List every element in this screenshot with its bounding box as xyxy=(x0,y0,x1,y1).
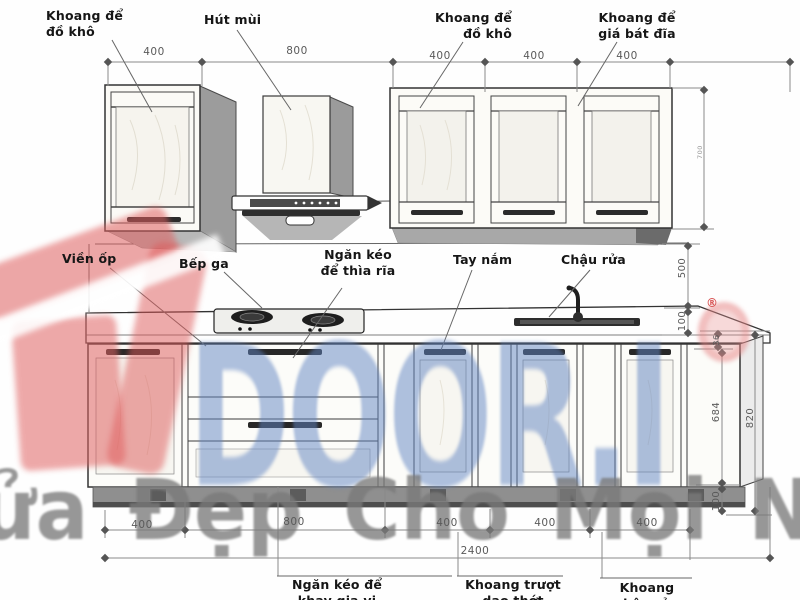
callout-range-hood: Hút mùi xyxy=(204,12,261,28)
kitchen-drawing-canvas: DOOR.I ửa Đẹp Cho Mọi Nh ® Khoang để đồ … xyxy=(0,0,800,600)
base-cabinets xyxy=(88,336,763,507)
callout-spice-drawer: Ngăn kéo để khay gia vị xyxy=(282,577,392,600)
gas-hob xyxy=(214,309,364,333)
callout-sink-compartment: Khoang chậu rửa xyxy=(607,580,687,600)
dim-total-2400: 2400 xyxy=(450,545,500,557)
dim-top-400-d: 400 xyxy=(607,50,647,62)
dim-bottom-400-d: 400 xyxy=(627,517,667,529)
dim-bottom-800: 800 xyxy=(274,516,314,528)
dim-gap-100: 100 xyxy=(677,304,689,338)
dim-backsplash-500: 500 xyxy=(677,251,689,285)
dim-bottom-400-c: 400 xyxy=(525,517,565,529)
dim-top-400-c: 400 xyxy=(514,50,554,62)
callout-gas-stove: Bếp ga xyxy=(179,256,229,272)
callout-dry-goods-left: Khoang để đồ khô xyxy=(46,8,132,40)
sink-faucet xyxy=(514,286,640,327)
dim-bottom-400-b: 400 xyxy=(427,517,467,529)
dim-plinth-100: 100 xyxy=(711,484,723,518)
dim-base-684: 684 xyxy=(711,395,723,429)
callout-handle: Tay nắm xyxy=(453,252,512,268)
callout-edge-trim: Viền ốp xyxy=(62,251,116,267)
dim-upper-height: 700 xyxy=(694,135,706,169)
range-hood xyxy=(232,96,382,240)
upper-cabinet-left xyxy=(105,85,236,252)
dim-bottom-400-a: 400 xyxy=(122,519,162,531)
callout-dry-goods-right: Khoang để đồ khô xyxy=(428,10,512,42)
callout-cutlery-drawer: Ngăn kéo để thìa rĩa xyxy=(302,247,414,279)
upper-cabinets-right xyxy=(390,88,672,245)
dim-base-820: 820 xyxy=(745,401,757,435)
dim-top-400-b: 400 xyxy=(420,50,460,62)
callout-sliding-compartment: Khoang trượt dao thớt xyxy=(458,577,568,600)
callout-dish-rack: Khoang để giá bát đĩa xyxy=(588,10,686,42)
cabinet-technical-drawing xyxy=(0,0,800,600)
dim-top-400-a: 400 xyxy=(134,46,174,58)
dim-top-800: 800 xyxy=(277,45,317,57)
dim-countertop-36: 36 xyxy=(711,323,723,357)
callout-sink: Chậu rửa xyxy=(561,252,626,268)
countertop xyxy=(86,306,770,343)
